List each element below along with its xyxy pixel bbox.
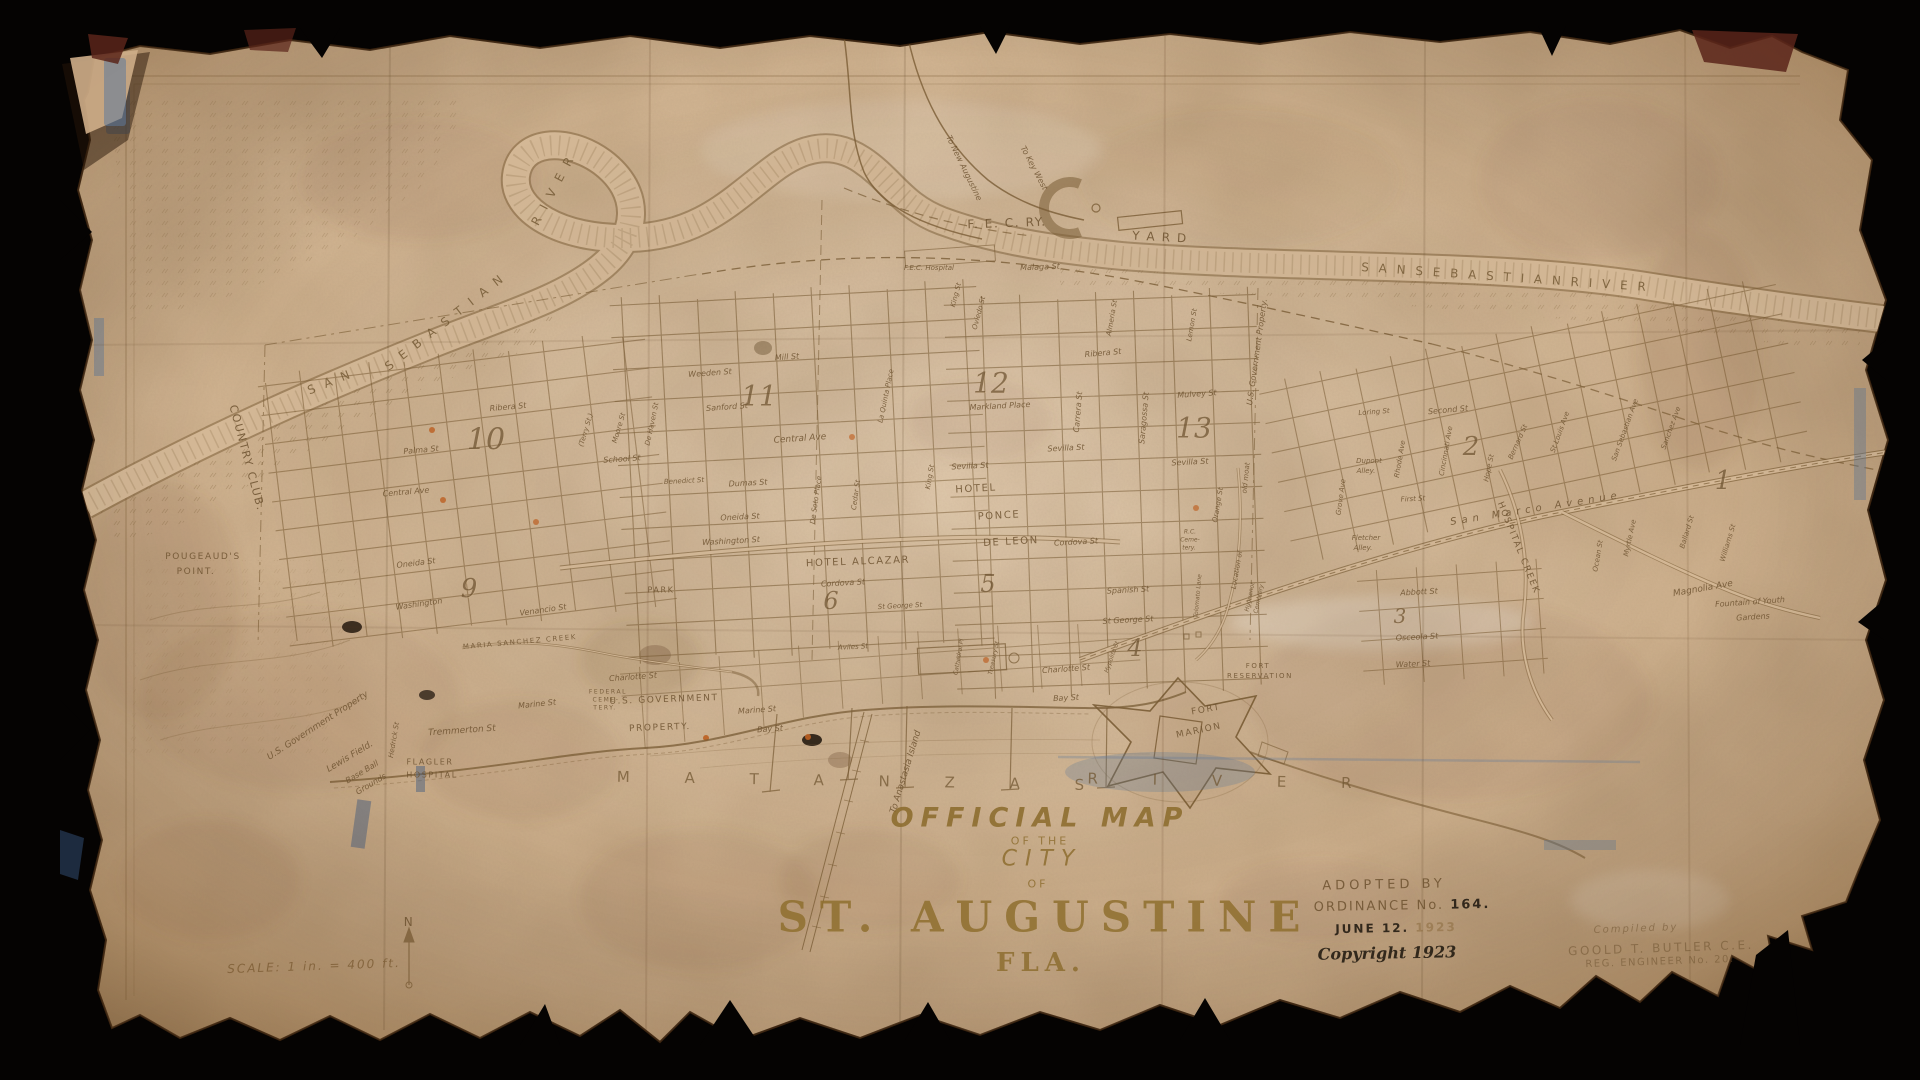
- map-title-fla: FLA.: [996, 948, 1086, 978]
- ordinance-line: ORDINANCE No. 164.: [1314, 897, 1491, 915]
- date-line: JUNE 12. 1923: [1335, 920, 1457, 936]
- date-stamp: JUNE 12.: [1335, 921, 1409, 936]
- copyright-line: Copyright 1923: [1317, 942, 1456, 963]
- ordinance-number: 164.: [1450, 897, 1490, 913]
- date-year: 1923: [1415, 920, 1457, 935]
- adopted-by-line: ADOPTED BY: [1322, 876, 1446, 893]
- screenshot-stage: S A NS E B A S T I A NR I V E RS A N S E…: [0, 0, 1920, 1080]
- map-title-st-augustine: ST. AUGUSTINE: [778, 893, 1313, 942]
- map-title: OFFICIAL MAP: [891, 803, 1190, 834]
- map-title-city: CITY: [1002, 847, 1083, 872]
- blue-cloth: [104, 58, 126, 126]
- map-title-of: OF: [1028, 878, 1049, 891]
- ordinance-label: ORDINANCE No.: [1314, 898, 1445, 915]
